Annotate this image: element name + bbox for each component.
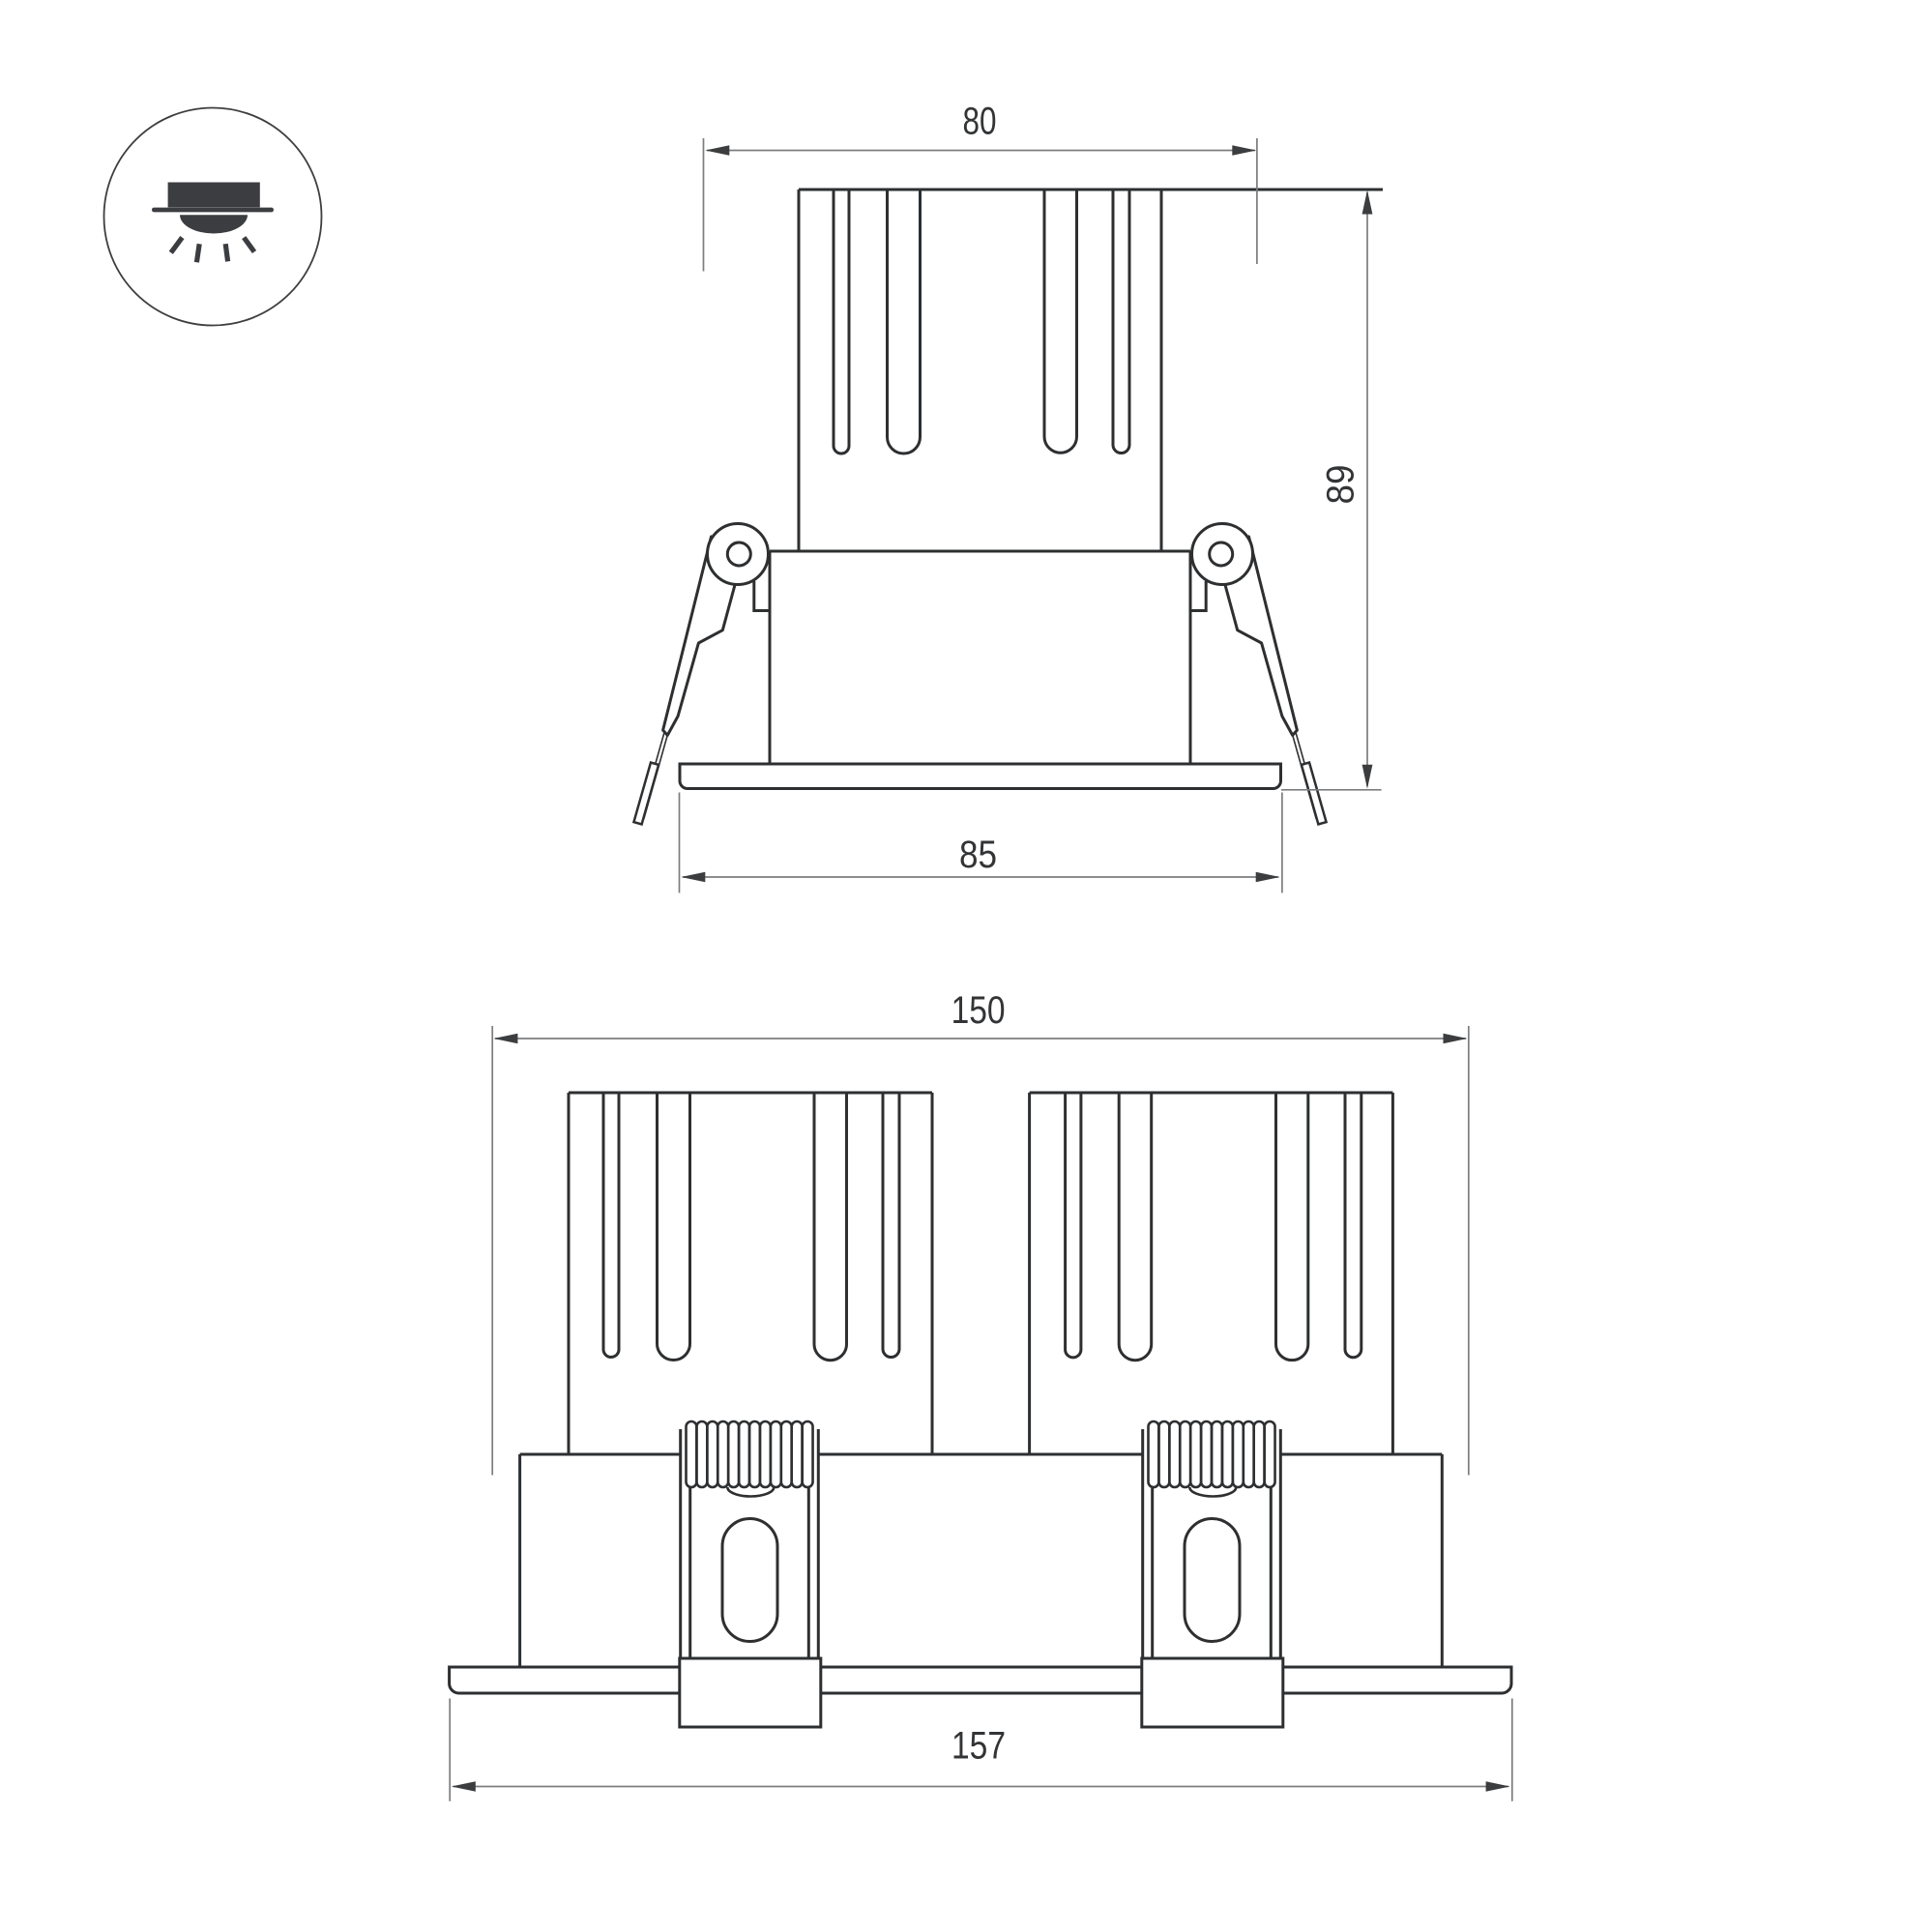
svg-text:89: 89 [1320,465,1362,505]
svg-text:150: 150 [951,989,1006,1032]
svg-text:157: 157 [951,1725,1006,1768]
svg-text:80: 80 [963,100,997,142]
svg-text:85: 85 [959,834,997,876]
